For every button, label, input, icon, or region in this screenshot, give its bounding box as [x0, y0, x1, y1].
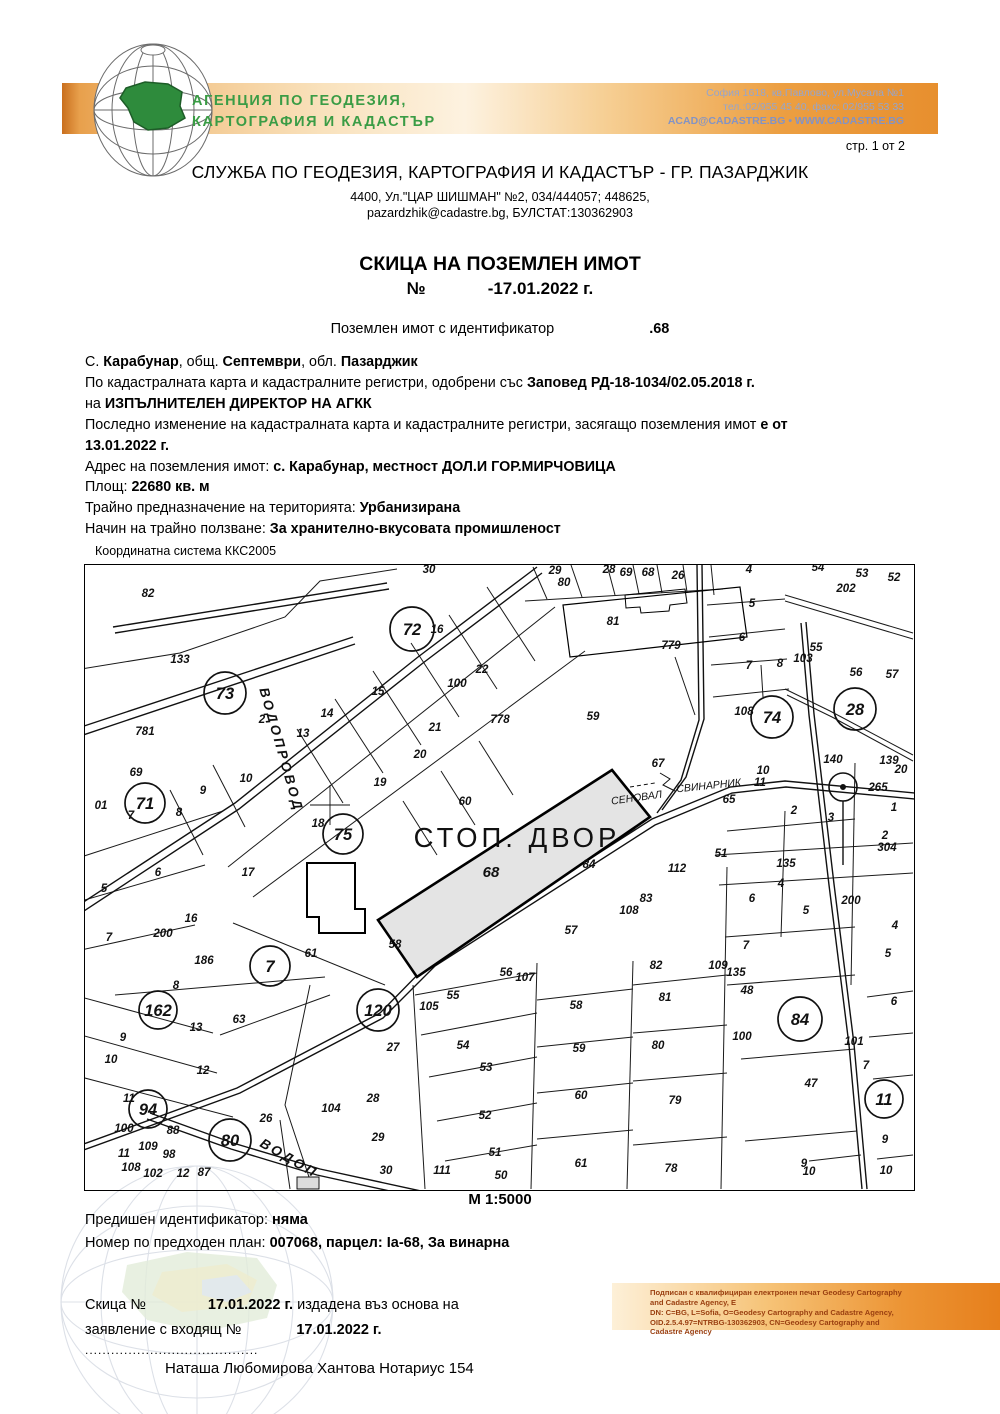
parcel-number: 84 [583, 859, 596, 871]
property-line: Площ: 22680 кв. м [85, 477, 915, 498]
map-title-stop-dvor: СТОП. ДВОР [414, 822, 621, 853]
parcel-number: 59 [587, 711, 600, 723]
parcel-number: 100 [114, 1123, 134, 1135]
parcel-number: 3 [828, 812, 835, 824]
parcel-number: 69 [130, 767, 143, 779]
signature-line: OID.2.5.4.97=NTRBG-130362903, CN=Geodesy… [650, 1318, 980, 1328]
parcel-number: 48 [740, 985, 754, 997]
parcel-number: 52 [888, 572, 901, 584]
text-segment: Карабунар [103, 354, 178, 370]
parcel-number: 81 [607, 616, 620, 628]
document-number-label: № [407, 279, 426, 299]
parcel-number: 14 [321, 708, 334, 720]
parcel-number: 7 [106, 932, 113, 944]
parcel-number: 18 [312, 818, 325, 830]
sketch-issue-line2: заявление с входящ №17.01.2022 г. [85, 1322, 382, 1338]
subject-parcel-number: 68 [483, 864, 500, 881]
parcel-number: 20 [413, 749, 427, 761]
parcel-number: 109 [708, 960, 728, 972]
parcel-number: 108 [121, 1162, 141, 1174]
parcel-number: 01 [95, 800, 108, 812]
parcel-number: 5 [101, 883, 108, 895]
document-title: СКИЦА НА ПОЗЕМЛЕН ИМОТ [0, 253, 1000, 276]
parcel-number: 6 [739, 632, 746, 644]
parcel-number: 5 [803, 905, 810, 917]
parcel-number: 54 [812, 565, 825, 574]
parcel-number: 59 [573, 1043, 586, 1055]
parcel-number: 52 [479, 1110, 492, 1122]
parcel-number: 105 [419, 1001, 439, 1013]
parcel-number: 781 [135, 726, 154, 738]
parcel-number: 83 [640, 893, 653, 905]
parcel-number: 9 [120, 1032, 127, 1044]
parcel-number: 112 [668, 863, 687, 875]
parcel-number: 12 [197, 1065, 210, 1077]
text-segment: 22680 кв. м [131, 479, 209, 495]
text-segment: заявление с входящ № [85, 1322, 241, 1338]
parcel-number: 87 [198, 1167, 211, 1179]
parcel-number: 61 [575, 1158, 588, 1170]
parcel-circle-label: 94 [139, 1101, 157, 1119]
parcel-number: 53 [856, 568, 869, 580]
parcel-number: 4 [777, 878, 785, 890]
text-segment: , обл. [301, 354, 341, 370]
text-segment: няма [272, 1212, 308, 1228]
service-address-line2: pazardzhik@cadastre.bg, БУЛСТАТ:13036290… [0, 206, 1000, 220]
parcel-number: 1 [891, 802, 897, 814]
parcel-number: 9 [200, 785, 207, 797]
parcel-number: 26 [671, 570, 685, 582]
parcel-number: 57 [886, 669, 899, 681]
parcel-number: 100 [732, 1031, 752, 1043]
property-line: С. Карабунар, общ. Септември, обл. Пазар… [85, 352, 915, 373]
parcel-number: 60 [575, 1090, 588, 1102]
parcel-circle-label: 11 [875, 1091, 892, 1109]
text-segment: По кадастралната карта и кадастралните р… [85, 375, 527, 391]
parcel-circle-label: 120 [364, 1002, 392, 1020]
parcel-number: 88 [167, 1125, 180, 1137]
signature-line: and Cadastre Agency, Е [650, 1298, 980, 1308]
parcel-number: 7 [743, 940, 750, 952]
notary-name: Наташа Любомирова Хантова Нотариус 154 [165, 1360, 474, 1377]
text-segment: Предишен идентификатор: [85, 1212, 272, 1228]
parcel-number: 21 [428, 722, 442, 734]
text-segment: Начин на трайно ползване: [85, 521, 270, 537]
parcel-number: 55 [447, 990, 460, 1002]
parcel-number: 135 [726, 967, 746, 979]
subject-parcel-68 [378, 770, 650, 977]
parcel-number: 108 [734, 706, 754, 718]
parcel-circle-label: 75 [334, 826, 353, 844]
parcel-number: 15 [372, 686, 385, 698]
text-segment: 007068, парцел: Iа-68, За винарна [270, 1235, 510, 1251]
parcel-number: 104 [321, 1103, 341, 1115]
parcel-number: 13 [190, 1022, 203, 1034]
parcel-number: 10 [803, 1166, 816, 1178]
parcel-number: 65 [723, 794, 736, 806]
parcel-number: 101 [844, 1036, 863, 1048]
document-date: -17.01.2022 г. [488, 279, 594, 299]
signature-line: Cadastre Agency [650, 1327, 980, 1337]
signature-line: Подписан с квалифициран електронен печат… [650, 1288, 980, 1298]
parcel-number: 6 [155, 867, 162, 879]
text-segment: За хранително-вкусовата промишленост [270, 521, 561, 537]
parcel-number: 133 [170, 654, 190, 666]
parcel-circle-label: 80 [221, 1132, 240, 1150]
page-number: стр. 1 от 2 [846, 139, 905, 153]
parcel-number: 109 [138, 1141, 158, 1153]
parcel-number: 202 [835, 583, 856, 595]
parcel-number: 17 [242, 867, 255, 879]
parcel-circle-label: 162 [144, 1002, 172, 1020]
parcel-number: 56 [850, 667, 863, 679]
parcel-ident-label: Поземлен имот с идентификатор [331, 321, 555, 337]
map-scale: М 1:5000 [0, 1191, 1000, 1208]
parcel-number: 82 [650, 960, 663, 972]
parcel-number: 7 [746, 660, 753, 672]
parcel-ident-value: .68 [649, 321, 669, 337]
parcel-number: 56 [500, 967, 513, 979]
parcel-number: 67 [652, 758, 665, 770]
property-line: 13.01.2022 г. [85, 436, 915, 457]
parcel-number: 58 [389, 939, 402, 951]
parcel-number: 140 [823, 754, 843, 766]
cadastral-map: 727371757428712016294808411СТОП. ДВОР68В… [84, 564, 915, 1191]
digital-signature-text: Подписан с квалифициран електронен печат… [650, 1288, 980, 1337]
parcel-number: 5 [885, 948, 892, 960]
parcel-number: 54 [457, 1040, 470, 1052]
coordinate-system-label: Координатна система ККС2005 [95, 544, 276, 558]
parcel-number: 10 [757, 765, 770, 777]
parcel-number: 61 [305, 948, 318, 960]
text-segment: Последно изменение на кадастралната карт… [85, 417, 760, 433]
document-number-line: № -17.01.2022 г. [0, 279, 1000, 299]
text-segment: Номер по предходен план: [85, 1235, 270, 1251]
parcel-number: 9 [882, 1134, 889, 1146]
parcel-number: 98 [163, 1149, 176, 1161]
parcel-number: 28 [366, 1093, 380, 1105]
text-segment: Трайно предназначение на територията: [85, 500, 360, 516]
parcel-number: 10 [240, 773, 253, 785]
parcel-number: 30 [423, 565, 436, 576]
agency-contact: София 1618, кв.Павлово, ул.Мусала №1 тел… [668, 87, 904, 129]
text-segment: Заповед РД-18-1034/02.05.2018 г. [527, 375, 755, 391]
parcel-number: 2 [790, 805, 798, 817]
parcel-number: 27 [386, 1042, 400, 1054]
parcel-number: 5 [749, 598, 756, 610]
cadastral-sketch-page: { "banner":{ "agency_line1":"АГЕНЦИЯ ПО … [0, 0, 1000, 1414]
text-segment: Скица № [85, 1297, 146, 1313]
text-segment: 17.01.2022 г. [208, 1297, 293, 1313]
parcel-number: 10 [105, 1054, 118, 1066]
parcel-number: 2 [258, 714, 266, 726]
parcel-number: 50 [495, 1170, 508, 1182]
parcel-number: 55 [810, 642, 823, 654]
parcel-number: 69 [620, 567, 633, 579]
property-line: Начин на трайно ползване: За хранително-… [85, 519, 915, 540]
parcel-number: 51 [715, 848, 728, 860]
parcel-number: 2 [881, 830, 889, 842]
parcel-number: 79 [669, 1095, 682, 1107]
signature-line: DN: C=BG, L=Sofia, O=Geodesy Cartography… [650, 1308, 980, 1318]
parcel-number: 51 [489, 1147, 502, 1159]
parcel-number: 28 [602, 565, 616, 576]
contact-address: София 1618, кв.Павлово, ул.Мусала №1 [668, 87, 904, 101]
parcel-number: 111 [433, 1165, 450, 1177]
sketch-issue-line1: Скица №17.01.2022 г. издадена въз основа… [85, 1297, 459, 1313]
property-description: С. Карабунар, общ. Септември, обл. Пазар… [85, 352, 915, 540]
parcel-number: 29 [548, 565, 562, 577]
text-segment: Септември [223, 354, 302, 370]
text-segment: Площ: [85, 479, 131, 495]
parcel-number: 11 [118, 1148, 130, 1160]
text-segment: на [85, 396, 105, 412]
agency-name-line2: КАРТОГРАФИЯ И КАДАСТЪР [192, 112, 436, 133]
signature-dotted-line: ........................................ [85, 1343, 258, 1357]
parcel-number: 4 [745, 565, 753, 576]
parcel-number: 68 [642, 567, 655, 579]
parcel-number: 7 [128, 810, 135, 822]
parcel-number: 265 [867, 782, 888, 794]
parcel-number: 80 [558, 577, 571, 589]
agency-name-line1: АГЕНЦИЯ ПО ГЕОДЕЗИЯ, [192, 91, 436, 112]
parcel-number: 103 [793, 653, 813, 665]
parcel-number: 12 [177, 1168, 190, 1180]
parcel-number: 82 [142, 588, 155, 600]
parcel-number: 200 [840, 895, 861, 907]
cadastral-map-svg: 727371757428712016294808411СТОП. ДВОР68В… [85, 565, 914, 1190]
parcel-number: 8 [173, 980, 180, 992]
parcel-number: 16 [431, 624, 444, 636]
parcel-number: 100 [447, 678, 467, 690]
text-segment: , общ. [179, 354, 223, 370]
parcel-number: 778 [490, 714, 510, 726]
previous-identifier-line: Предишен идентификатор: няма [85, 1212, 308, 1228]
agency-name: АГЕНЦИЯ ПО ГЕОДЕЗИЯ, КАРТОГРАФИЯ И КАДАС… [192, 91, 436, 133]
text-segment: 17.01.2022 г. [296, 1322, 381, 1338]
contact-web: ACAD@CADASTRE.BG • WWW.CADASTRE.BG [668, 115, 904, 129]
parcel-number: 4 [891, 920, 899, 932]
parcel-number: 107 [515, 972, 535, 984]
text-segment: 13.01.2022 г. [85, 438, 169, 454]
text-segment: издадена въз основа на [293, 1297, 459, 1313]
property-line: на ИЗПЪЛНИТЕЛЕН ДИРЕКТОР НА АГКК [85, 394, 915, 415]
text-segment: ИЗПЪЛНИТЕЛЕН ДИРЕКТОР НА АГКК [105, 396, 372, 412]
parcel-number: 16 [185, 913, 198, 925]
parcel-number: 186 [194, 955, 214, 967]
property-line: По кадастралната карта и кадастралните р… [85, 373, 915, 394]
property-line: Трайно предназначение на територията: Ур… [85, 498, 915, 519]
text-segment: Урбанизирана [360, 500, 460, 516]
property-line: Последно изменение на кадастралната карт… [85, 415, 915, 436]
parcel-number: 53 [480, 1062, 493, 1074]
parcel-number: 63 [233, 1014, 246, 1026]
parcel-number: 10 [880, 1165, 893, 1177]
parcel-number: 80 [652, 1040, 665, 1052]
parcel-number: 22 [475, 664, 489, 676]
text-segment: Адрес на поземления имот: [85, 459, 273, 475]
road-label: ВОДОПРОВОД [256, 686, 306, 814]
parcel-number: 57 [565, 925, 578, 937]
parcel-number: 13 [297, 728, 310, 740]
road-label: ВОДОП [257, 1135, 321, 1180]
text-segment: с. Карабунар, местност ДОЛ.И ГОР.МИРЧОВИ… [273, 459, 616, 475]
parcel-number: 102 [143, 1168, 163, 1180]
parcel-number: 8 [176, 807, 183, 819]
text-segment: С. [85, 354, 103, 370]
parcel-number: 108 [619, 905, 639, 917]
parcel-number: 11 [123, 1093, 135, 1105]
service-address-line1: 4400, Ул."ЦАР ШИШМАН" №2, 034/444057; 44… [0, 190, 1000, 204]
parcel-number: 58 [570, 1000, 583, 1012]
text-segment: е от [760, 417, 787, 433]
parcel-number: 11 [754, 777, 766, 789]
parcel-number: 29 [371, 1132, 385, 1144]
parcel-number: 304 [877, 842, 897, 854]
text-segment: Пазарджик [341, 354, 418, 370]
parcel-number: 26 [259, 1113, 273, 1125]
parcel-number: 135 [776, 858, 796, 870]
parcel-number: 47 [804, 1078, 818, 1090]
building-courtyard [307, 863, 365, 933]
contact-phone: тел.:02/955 45 40, факс: 02/955 53 33 [668, 101, 904, 115]
property-line: Адрес на поземления имот: с. Карабунар, … [85, 457, 915, 478]
parcel-number: 6 [749, 893, 756, 905]
previous-plan-line: Номер по предходен план: 007068, парцел:… [85, 1235, 509, 1251]
parcel-number: 779 [661, 640, 681, 652]
parcel-number: 20 [894, 764, 908, 776]
parcel-circle-label: 71 [136, 795, 154, 813]
parcel-number: 30 [380, 1165, 393, 1177]
parcel-ident-line: Поземлен имот с идентификатор .68 [0, 321, 1000, 337]
parcel-number: 19 [374, 777, 387, 789]
parcel-circle-label: 84 [791, 1011, 809, 1029]
parcel-circle-label: 7 [265, 958, 275, 976]
parcel-number: 8 [777, 658, 784, 670]
parcel-circle-label: 72 [403, 621, 421, 639]
parcel-circle-label: 28 [845, 701, 865, 719]
parcel-number: 60 [459, 796, 472, 808]
parcel-number: 81 [659, 992, 672, 1004]
parcel-circle-label: 73 [216, 685, 234, 703]
parcel-number: 7 [863, 1060, 870, 1072]
parcel-number: 6 [891, 996, 898, 1008]
parcel-number: 78 [665, 1163, 678, 1175]
parcel-number: 200 [152, 928, 173, 940]
parcel-circle-label: 74 [763, 709, 781, 727]
